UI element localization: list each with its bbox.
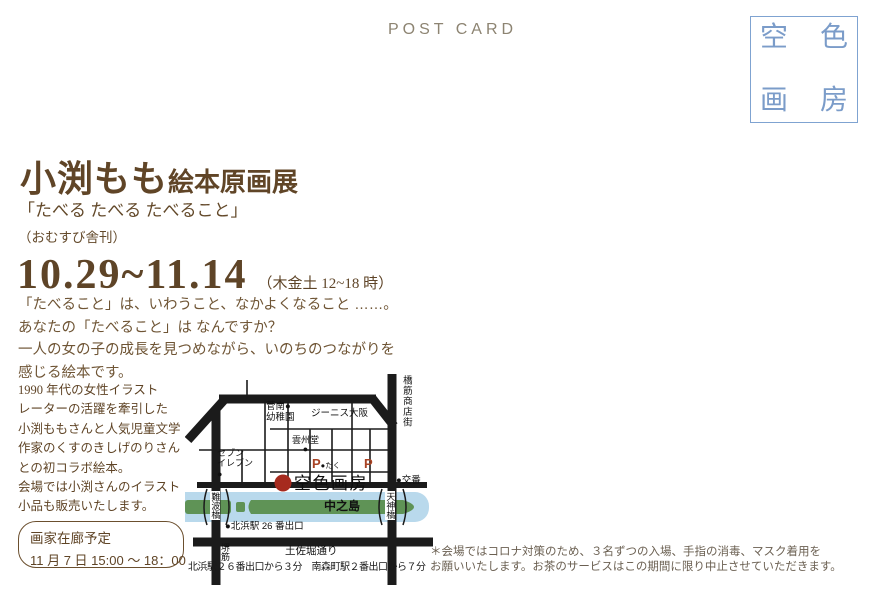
map-label-gallery: 空色画房 <box>294 474 368 494</box>
map-label-kitahama-exit: ●北浜駅 26 番出口 <box>225 522 304 533</box>
description-line: 小渕ももさんと人気児童文学 <box>18 420 181 439</box>
description-line: 小品も販売いたします。 <box>18 497 181 516</box>
gallery-logo-box: 空 色 画 房 <box>750 16 858 123</box>
island-connector <box>236 502 245 512</box>
lead-text: 「たべること」は、いわうこと、なかよくなること ……。 あなたの「たべること」は… <box>18 294 398 384</box>
map-label-shopping-street: 橋筋商店街 <box>400 375 411 428</box>
date-range: 10.29~11.14 <box>17 251 248 299</box>
map-label-zenith-osaka: ジーニス大阪 <box>311 409 368 420</box>
logo-row-top: 空 色 <box>760 23 848 53</box>
description-line: レーターの活躍を牽引した <box>18 400 181 419</box>
description-line: 1990 年代の女性イラスト <box>18 381 181 400</box>
access-map: 菅南● 幼稚園 ジーニス大阪 雲州堂 ● セブン イレブン ● P●たく P 空… <box>185 372 435 587</box>
logo-row-bottom: 画 房 <box>760 86 848 116</box>
map-label-sakaisuji: 堺 筋 <box>221 544 230 563</box>
parking-icon: P <box>364 456 373 471</box>
lead-line: 一人の女の子の成長を見つめながら、いのちのつながりを <box>18 339 398 362</box>
map-label-police-box: ●交番 <box>396 476 421 487</box>
notice-line: お願いいたします。お茶のサービスはこの期間に限り中止させていただきます。 <box>430 560 842 575</box>
map-label-nakanoshima: 中之島 <box>324 500 360 514</box>
logo-char: 画 <box>760 86 788 116</box>
map-label-tosabori-street: 土佐堀通り <box>285 545 338 557</box>
island-west <box>185 500 231 514</box>
postcard-label: POST CARD <box>388 21 517 39</box>
notice-line: ＊会場ではコロナ対策のため、３名ずつの入場、手指の消毒、マスク着用を <box>430 545 842 560</box>
description-line: 会場では小渕さんのイラスト <box>18 478 181 497</box>
opening-hours: （木金土 12~18 時） <box>258 272 394 293</box>
postcard: POST CARD 空 色 画 房 小渕もも 絵本原画展 「たべる たべる たべ… <box>0 0 875 591</box>
map-label-parking-right: P <box>364 457 373 472</box>
exhibition-dates: 10.29~11.14 （木金土 12~18 時） <box>17 251 393 299</box>
artist-visit-box: 画家在廊予定 11 月 7 日 15:00 ～ 18：00 <box>18 521 184 568</box>
map-access-caption: 北浜駅２６番出口から３分 南森町駅２番出口から７分 <box>188 562 426 574</box>
map-label-nanbabashi: 難波橋 <box>210 491 220 520</box>
parking-icon: P <box>312 456 321 471</box>
logo-char: 色 <box>820 23 848 53</box>
parking-note: ●たく <box>321 461 341 470</box>
artist-name: 小渕もも <box>20 150 168 202</box>
gallery-marker-dot <box>275 475 292 492</box>
publisher: （おむすび舎刊） <box>18 226 126 246</box>
description-line: との初コラボ絵本。 <box>18 459 181 478</box>
covid-notice: ＊会場ではコロナ対策のため、３名ずつの入場、手指の消毒、マスク着用を お願いいた… <box>430 545 842 574</box>
map-label-seven-eleven: セブン イレブン ● <box>217 448 253 479</box>
logo-char: 房 <box>820 86 848 116</box>
map-label-parking-left: P●たく <box>312 457 340 472</box>
lead-line: あなたの「たべること」は なんですか？ <box>18 317 398 340</box>
exhibition-type: 絵本原画展 <box>168 162 298 199</box>
description-text: 1990 年代の女性イラスト レーターの活躍を牽引した 小渕ももさんと人気児童文… <box>18 381 181 517</box>
visit-schedule: 11 月 7 日 15:00 ～ 18：00 <box>30 550 172 569</box>
lead-line: 「たべること」は、いわうこと、なかよくなること ……。 <box>18 294 398 317</box>
visit-title: 画家在廊予定 <box>30 527 172 547</box>
book-title: 「たべる たべる たべること」 <box>18 196 248 221</box>
description-line: 作家のくすのきしげのりさん <box>18 439 181 458</box>
map-label-unshudo: 雲州堂 ● <box>292 436 319 454</box>
logo-char: 空 <box>760 23 788 53</box>
map-label-tenjinbashi: 天神橋 <box>385 491 395 520</box>
map-label-kindergarten: 菅南● 幼稚園 <box>266 402 295 424</box>
exhibition-title: 小渕もも 絵本原画展 <box>20 150 298 202</box>
